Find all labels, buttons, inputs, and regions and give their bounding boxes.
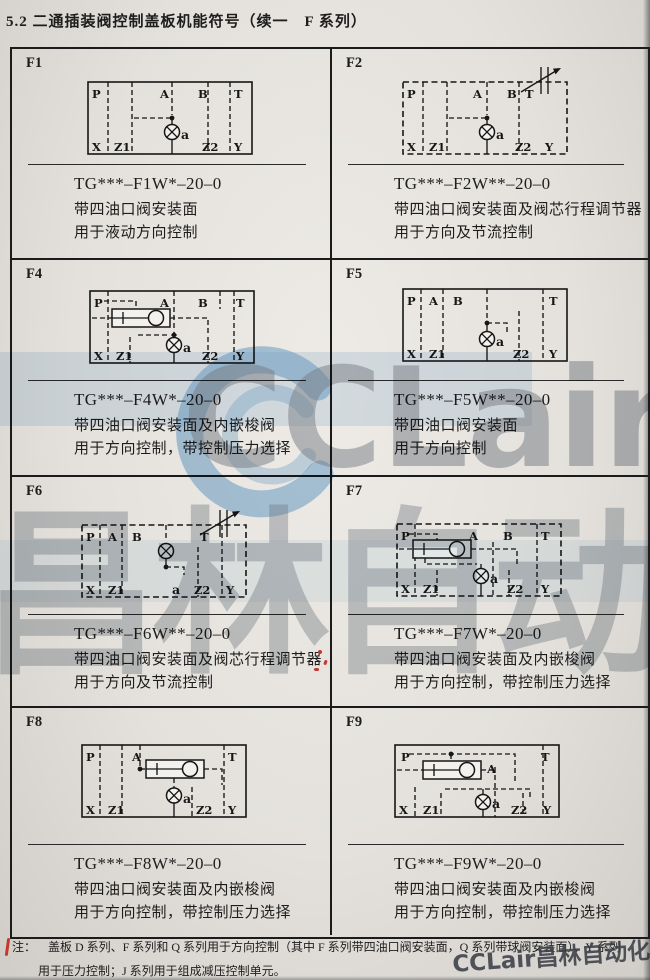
divider-line bbox=[348, 380, 624, 381]
svg-text:P: P bbox=[86, 750, 95, 764]
svg-text:X: X bbox=[407, 347, 416, 361]
svg-text:A: A bbox=[131, 750, 142, 764]
description-line: 用于方向控制，带控制压力选择 bbox=[74, 901, 324, 922]
svg-text:P: P bbox=[407, 87, 416, 101]
model-code: TG***–F8W*–20–0 bbox=[74, 854, 324, 874]
model-code: TG***–F7W*–20–0 bbox=[394, 624, 642, 644]
svg-text:Y: Y bbox=[542, 803, 552, 817]
svg-text:T: T bbox=[525, 87, 534, 101]
svg-text:X: X bbox=[399, 803, 408, 817]
description-line: 带四油口阀安装面 bbox=[74, 198, 324, 219]
model-code: TG***–F1W*–20–0 bbox=[74, 174, 324, 194]
svg-text:A: A bbox=[159, 296, 170, 310]
svg-text:Y: Y bbox=[548, 347, 558, 361]
svg-text:P: P bbox=[94, 296, 103, 310]
svg-text:B: B bbox=[503, 529, 513, 543]
cell-f2: F2 PABTXZ1aZ2Y TG***–F2W**–20–0 带四油口阀安装面… bbox=[332, 49, 648, 260]
description-line: 带四油口阀安装面及阀芯行程调节器 bbox=[394, 198, 642, 219]
hydraulic-diagram-f7: PABTXZ1aZ2Y bbox=[389, 504, 579, 606]
svg-text:Y: Y bbox=[540, 582, 550, 596]
svg-text:T: T bbox=[236, 296, 245, 310]
svg-text:B: B bbox=[453, 294, 463, 308]
divider-line bbox=[348, 614, 624, 615]
page-edge-shadow bbox=[0, 976, 650, 980]
svg-text:a: a bbox=[172, 582, 180, 597]
svg-text:a: a bbox=[183, 791, 191, 806]
page-edge-shadow bbox=[643, 0, 650, 980]
svg-text:Y: Y bbox=[235, 349, 245, 363]
svg-text:A: A bbox=[107, 530, 118, 544]
svg-text:T: T bbox=[200, 530, 209, 544]
divider-line bbox=[348, 164, 624, 165]
svg-text:X: X bbox=[407, 140, 416, 154]
svg-text:P: P bbox=[86, 530, 95, 544]
svg-text:T: T bbox=[234, 87, 243, 101]
footnote-label: 注： bbox=[12, 938, 36, 955]
divider-line bbox=[348, 844, 624, 845]
cell-f9: F9 PATXZ1aZ2Y TG***–F9W*–20–0 带四油口阀安装面及内… bbox=[332, 708, 648, 935]
cell-id: F7 bbox=[346, 483, 362, 500]
description-line: 用于方向控制，带控制压力选择 bbox=[394, 901, 642, 922]
svg-text:B: B bbox=[132, 530, 142, 544]
cell-f1: F1 PABTXZ1aZ2Y TG***–F1W*–20–0 带四油口阀安装面 … bbox=[12, 49, 332, 260]
cell-f5: F5 PABTXZ1aZ2Y TG***–F5W**–20–0 带四油口阀安装面… bbox=[332, 260, 648, 477]
svg-text:X: X bbox=[86, 803, 95, 817]
model-code: TG***–F5W**–20–0 bbox=[394, 390, 642, 410]
red-mark bbox=[314, 668, 319, 671]
model-code: TG***–F9W*–20–0 bbox=[394, 854, 642, 874]
svg-text:Y: Y bbox=[227, 803, 237, 817]
description-line: 带四油口阀安装面及阀芯行程调节器 bbox=[74, 648, 324, 669]
cell-f7: F7 PABTXZ1aZ2Y TG***–F7W*–20–0 带四油口阀安装面及… bbox=[332, 477, 648, 708]
hydraulic-diagram-f8: PATXZ1aZ2Y bbox=[74, 725, 264, 827]
svg-text:B: B bbox=[507, 87, 517, 101]
svg-text:Z1: Z1 bbox=[423, 582, 439, 596]
model-code: TG***–F4W*–20–0 bbox=[74, 390, 324, 410]
svg-text:Z1: Z1 bbox=[116, 349, 132, 363]
svg-text:T: T bbox=[541, 529, 550, 543]
svg-text:Z2: Z2 bbox=[202, 140, 218, 154]
description-line: 用于方向及节流控制 bbox=[394, 221, 642, 242]
svg-text:P: P bbox=[401, 529, 410, 543]
cell-f4: F4 PABTXZ1aZ2Y TG***–F4W*–20–0 带四油口阀安装面及… bbox=[12, 260, 332, 477]
cell-f6: F6 PABTXZ1aZ2Y TG***–F6W**–20–0 带四油口阀安装面… bbox=[12, 477, 332, 708]
svg-text:A: A bbox=[486, 762, 497, 776]
divider-line bbox=[28, 380, 306, 381]
svg-text:a: a bbox=[492, 796, 500, 811]
svg-text:a: a bbox=[490, 571, 498, 586]
scanned-page: 5.2 二通插装阀控制盖板机能符号（续一 F 系列） F1 PABTXZ1aZ2… bbox=[0, 0, 650, 980]
svg-text:X: X bbox=[94, 349, 103, 363]
hydraulic-diagram-f9: PATXZ1aZ2Y bbox=[387, 725, 577, 827]
svg-text:T: T bbox=[549, 294, 558, 308]
svg-text:a: a bbox=[181, 127, 189, 142]
symbol-table: F1 PABTXZ1aZ2Y TG***–F1W*–20–0 带四油口阀安装面 … bbox=[10, 47, 650, 939]
svg-text:Z1: Z1 bbox=[108, 803, 124, 817]
description-line: 用于方向控制，带控制压力选择 bbox=[74, 437, 324, 458]
svg-text:a: a bbox=[496, 127, 504, 142]
svg-text:Z1: Z1 bbox=[429, 347, 445, 361]
svg-text:Z2: Z2 bbox=[194, 583, 210, 597]
svg-text:A: A bbox=[468, 529, 479, 543]
hydraulic-diagram-f1: PABTXZ1aZ2Y bbox=[80, 62, 270, 164]
svg-text:Z1: Z1 bbox=[423, 803, 439, 817]
divider-line bbox=[28, 164, 306, 165]
svg-text:a: a bbox=[183, 340, 191, 355]
svg-text:B: B bbox=[198, 87, 208, 101]
svg-text:X: X bbox=[92, 140, 101, 154]
svg-text:Z2: Z2 bbox=[513, 347, 529, 361]
model-code: TG***–F2W**–20–0 bbox=[394, 174, 642, 194]
svg-text:P: P bbox=[407, 294, 416, 308]
description-line: 带四油口阀安装面及内嵌梭阀 bbox=[74, 878, 324, 899]
description-line: 用于方向及节流控制 bbox=[74, 671, 324, 692]
hydraulic-diagram-f6: PABTXZ1aZ2Y bbox=[74, 505, 264, 607]
divider-line bbox=[28, 614, 306, 615]
svg-text:Y: Y bbox=[233, 140, 243, 154]
cell-f8: F8 PATXZ1aZ2Y TG***–F8W*–20–0 带四油口阀安装面及内… bbox=[12, 708, 332, 935]
cell-id: F5 bbox=[346, 266, 362, 283]
svg-text:X: X bbox=[86, 583, 95, 597]
description-line: 带四油口阀安装面及内嵌梭阀 bbox=[394, 878, 642, 899]
description-line: 带四油口阀安装面及内嵌梭阀 bbox=[74, 414, 324, 435]
svg-text:A: A bbox=[159, 87, 170, 101]
svg-text:Z2: Z2 bbox=[507, 582, 523, 596]
svg-text:Z2: Z2 bbox=[515, 140, 531, 154]
cell-id: F2 bbox=[346, 55, 362, 72]
svg-text:Z1: Z1 bbox=[429, 140, 445, 154]
description-line: 用于方向控制，带控制压力选择 bbox=[394, 671, 642, 692]
hydraulic-diagram-f4: PABTXZ1aZ2Y bbox=[82, 271, 272, 373]
svg-text:Z1: Z1 bbox=[108, 583, 124, 597]
svg-text:Y: Y bbox=[544, 140, 554, 154]
svg-text:X: X bbox=[401, 582, 410, 596]
svg-text:P: P bbox=[401, 750, 410, 764]
red-mark bbox=[5, 938, 10, 956]
hydraulic-diagram-f2: PABTXZ1aZ2Y bbox=[395, 62, 585, 164]
divider-line bbox=[28, 844, 306, 845]
svg-text:a: a bbox=[496, 334, 504, 349]
cell-id: F8 bbox=[26, 714, 42, 731]
cell-id: F9 bbox=[346, 714, 362, 731]
svg-text:Z2: Z2 bbox=[511, 803, 527, 817]
cell-id: F1 bbox=[26, 55, 42, 72]
svg-text:T: T bbox=[541, 750, 550, 764]
svg-text:T: T bbox=[228, 750, 237, 764]
description-line: 带四油口阀安装面 bbox=[394, 414, 642, 435]
svg-text:Y: Y bbox=[225, 583, 235, 597]
hydraulic-diagram-f5: PABTXZ1aZ2Y bbox=[395, 269, 585, 371]
description-line: 用于液动方向控制 bbox=[74, 221, 324, 242]
svg-text:P: P bbox=[92, 87, 101, 101]
svg-text:A: A bbox=[472, 87, 483, 101]
svg-text:Z1: Z1 bbox=[114, 140, 130, 154]
cell-id: F6 bbox=[26, 483, 42, 500]
red-mark bbox=[318, 650, 322, 654]
svg-text:Z2: Z2 bbox=[196, 803, 212, 817]
cell-id: F4 bbox=[26, 266, 42, 283]
svg-text:A: A bbox=[428, 294, 439, 308]
svg-text:Z2: Z2 bbox=[202, 349, 218, 363]
page-title: 5.2 二通插装阀控制盖板机能符号（续一 F 系列） bbox=[6, 10, 367, 31]
description-line: 带四油口阀安装面及内嵌梭阀 bbox=[394, 648, 642, 669]
description-line: 用于方向控制 bbox=[394, 437, 642, 458]
svg-text:B: B bbox=[198, 296, 208, 310]
model-code: TG***–F6W**–20–0 bbox=[74, 624, 324, 644]
